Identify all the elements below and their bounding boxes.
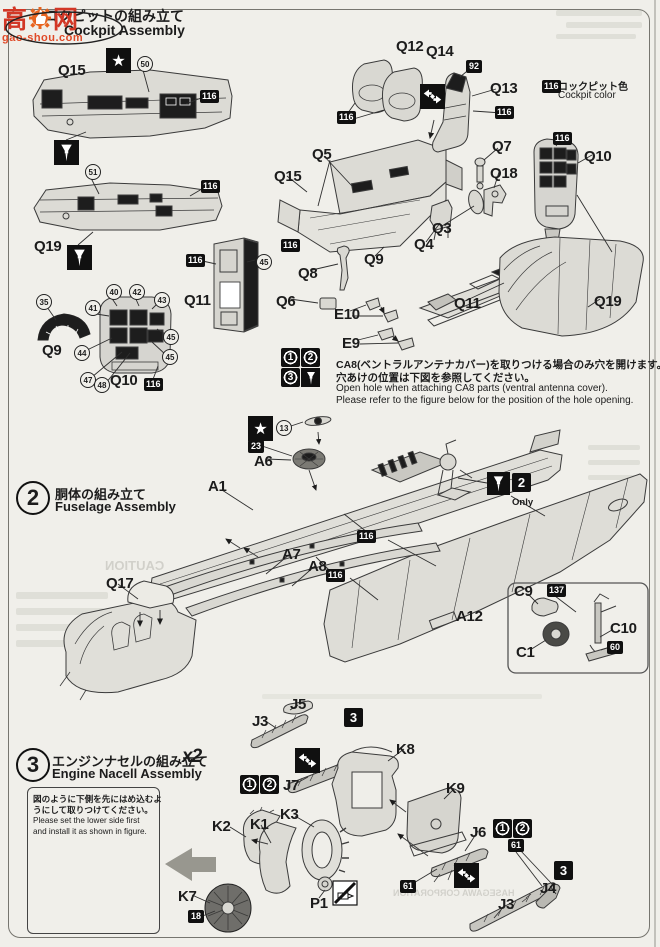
times-two-icon: x2 [182,746,201,768]
watermark-url: gao-shou.com [2,32,83,44]
watermark-char-2: 网 [53,0,78,36]
watermark-char-1: 高 [2,0,27,36]
variant-digit-icon: 1 [240,775,259,794]
star-icon [248,416,273,441]
lower-note-jp2: うにして取りつけてください。 [33,804,153,816]
cab-note-en1: Open hole when attaching CA8 parts (vent… [336,383,608,394]
variant-digit-icon: 2 [513,819,532,838]
drill-marking-icon [67,245,92,270]
symmetry-swap-icon [420,84,445,109]
watermark: 高 网 gao-shou.com [2,0,83,44]
variant-digit-icon: 3 [554,861,573,880]
drill-marking-icon [54,140,79,165]
symmetry-swap-icon [295,748,320,773]
instruction-sheet: CAUTION HASEGAWA CORPORATION [0,0,660,947]
step3-number-badge: 3 [16,748,50,782]
variant-digit-icon: 2 [512,473,531,492]
gear-thumb-logo-icon [28,6,52,30]
variant-digit-icon: 1 [493,819,512,838]
lower-note-en1: Please set the lower side first [33,816,140,825]
lower-note-en2: and install it as shown in figure. [33,827,147,836]
legend-paint-chip: 116 [542,80,561,93]
symmetry-swap-icon [454,863,479,888]
only-label: Only [512,497,533,508]
star-icon [106,48,131,73]
legend-en: Cockpit color [558,90,616,101]
variant-digit-icon: 2 [260,775,279,794]
variant-digit-icon: 3 [281,368,300,387]
step3-title-en: Engine Nacell Assembly [52,766,202,781]
variant-digit-icon: 3 [344,708,363,727]
variant-digit-icon: 2 [301,348,320,367]
no-glue-icon [332,880,358,906]
cab-note-en2: Please refer to the figure below for the… [336,395,633,406]
variant-digit-icon: 1 [281,348,300,367]
drill-hole-icon [487,472,510,495]
step2-number-badge: 2 [16,481,50,515]
step2-title-en: Fuselage Assembly [55,499,176,514]
drill-hole-icon [301,368,320,387]
